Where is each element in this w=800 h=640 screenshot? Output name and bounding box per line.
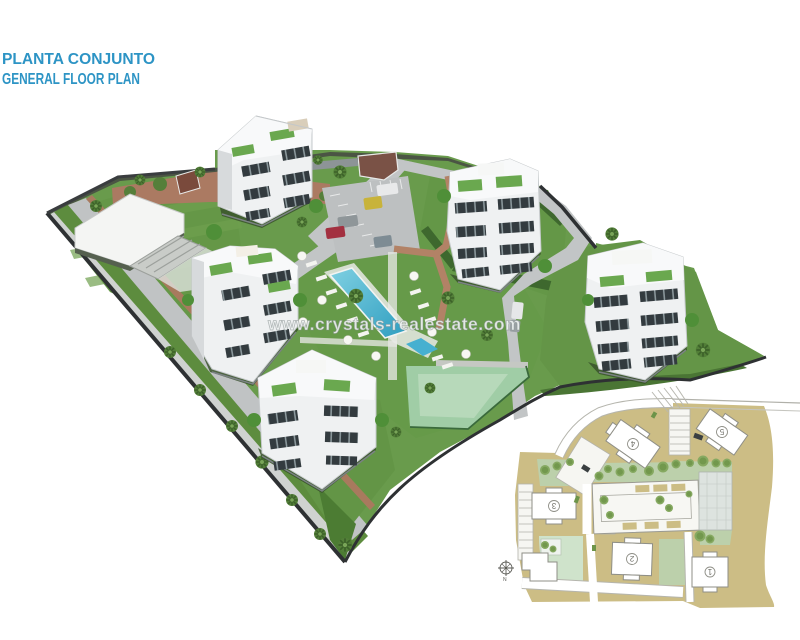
svg-text:N: N [503, 577, 507, 583]
svg-text:www.crystals-realestate.com: www.crystals-realestate.com [267, 314, 521, 334]
svg-text:5: 5 [719, 427, 724, 436]
svg-text:4: 4 [630, 439, 635, 448]
svg-text:1: 1 [707, 567, 712, 576]
svg-text:3: 3 [551, 501, 556, 510]
svg-text:GENERAL FLOOR PLAN: GENERAL FLOOR PLAN [2, 71, 140, 88]
svg-text:PLANTA CONJUNTO: PLANTA CONJUNTO [2, 51, 155, 68]
